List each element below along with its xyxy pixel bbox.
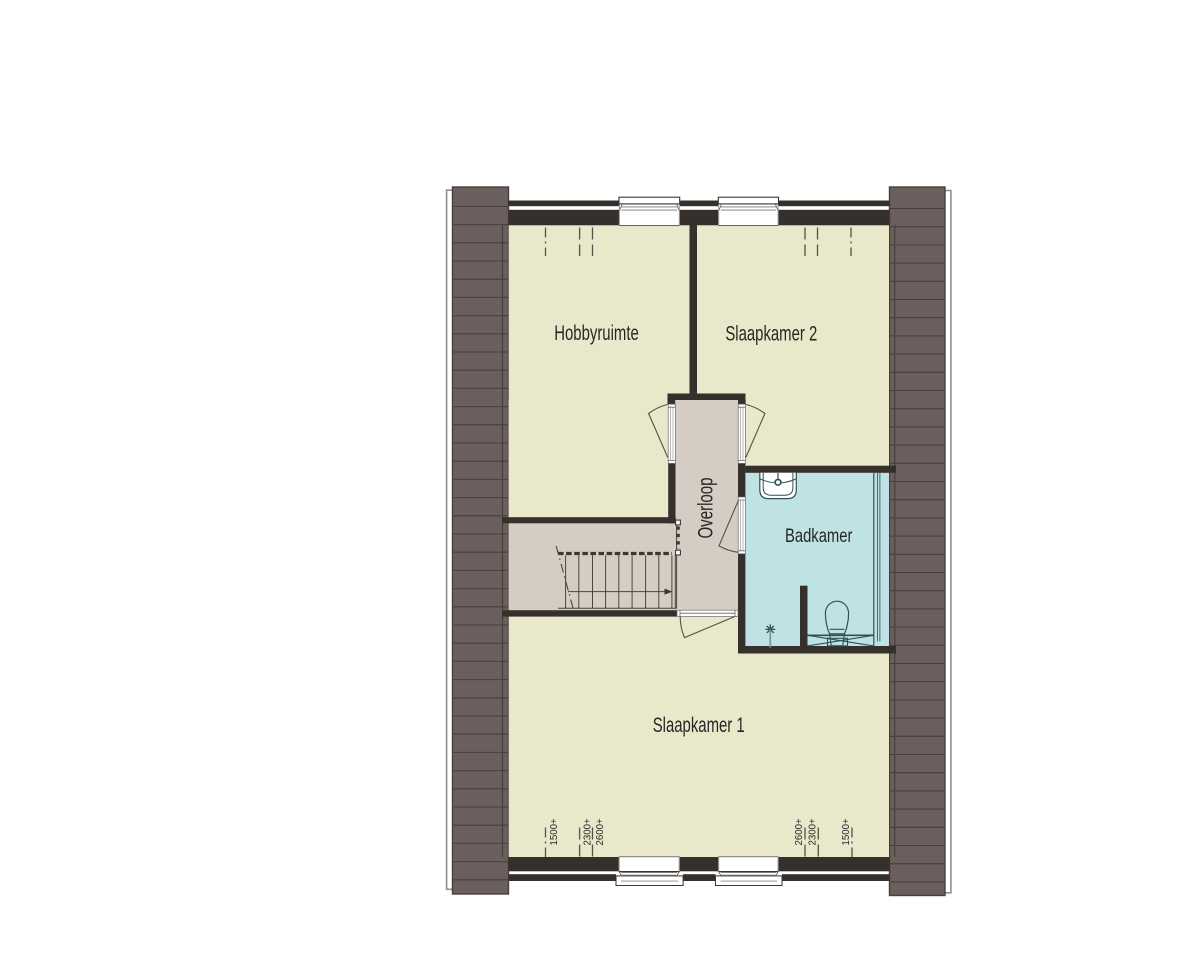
- svg-text:2300+: 2300+: [807, 818, 818, 845]
- svg-text:1500+: 1500+: [841, 818, 852, 845]
- svg-text:Hobbyruimte: Hobbyruimte: [554, 321, 638, 344]
- svg-text:Slaapkamer 1: Slaapkamer 1: [653, 714, 745, 737]
- svg-text:2300+: 2300+: [582, 818, 593, 845]
- svg-text:Overloop: Overloop: [693, 477, 717, 538]
- svg-text:2600+: 2600+: [594, 818, 605, 845]
- svg-text:2600+: 2600+: [794, 818, 805, 845]
- svg-text:Badkamer: Badkamer: [785, 525, 853, 546]
- svg-text:Slaapkamer 2: Slaapkamer 2: [725, 322, 817, 345]
- svg-text:1500+: 1500+: [548, 818, 559, 845]
